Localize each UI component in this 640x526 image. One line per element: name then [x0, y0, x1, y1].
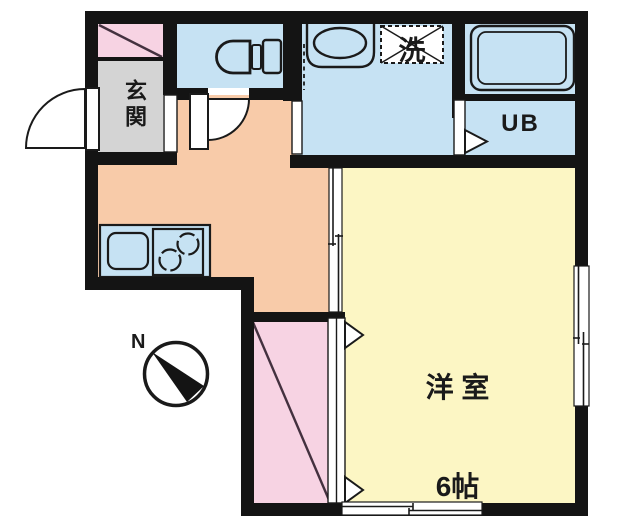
toilet-icon	[217, 40, 282, 73]
wall-under-bathtub	[460, 94, 575, 101]
washbasin-icon	[307, 24, 374, 67]
kitchen-counter	[100, 225, 210, 277]
bath-door-opening	[454, 100, 465, 155]
laundry-label: 洗	[381, 29, 443, 68]
unit-bath-label: UB	[483, 110, 558, 138]
wall-top	[85, 11, 588, 24]
wall-closet-genkan-line	[98, 57, 163, 61]
floor-plan-drawing	[0, 0, 640, 526]
wall-left-upper	[85, 11, 98, 90]
wall-kitchen-bottom	[85, 277, 254, 290]
right-sliding-window-icon	[573, 266, 589, 406]
wall-left-lower	[85, 148, 98, 290]
compass-icon	[145, 343, 208, 406]
kitchen-sink-icon	[108, 233, 148, 269]
western-room-label: 洋 室 6帖	[385, 305, 530, 526]
genkan-step-opening	[164, 95, 177, 152]
wall-genkan-toilet	[163, 11, 177, 95]
wall-toilet-bottom-right	[249, 88, 283, 100]
wall-toilet-washroom	[283, 11, 302, 101]
floor-plan: 玄関 洗 UB 洋 室 6帖 N	[0, 0, 640, 526]
sliding-partition	[328, 168, 343, 312]
entry-door-icon	[26, 88, 99, 150]
wall-room-top	[290, 155, 588, 168]
washroom-door-opening	[292, 101, 302, 154]
room-size: 6帖	[385, 470, 530, 503]
wall-genkan-bottom	[85, 152, 177, 165]
wall-right	[575, 11, 588, 516]
entrance-label: 玄関	[121, 79, 147, 131]
north-label: N	[131, 331, 145, 354]
bathtub-icon	[471, 26, 574, 90]
room-name: 洋 室	[385, 371, 530, 404]
